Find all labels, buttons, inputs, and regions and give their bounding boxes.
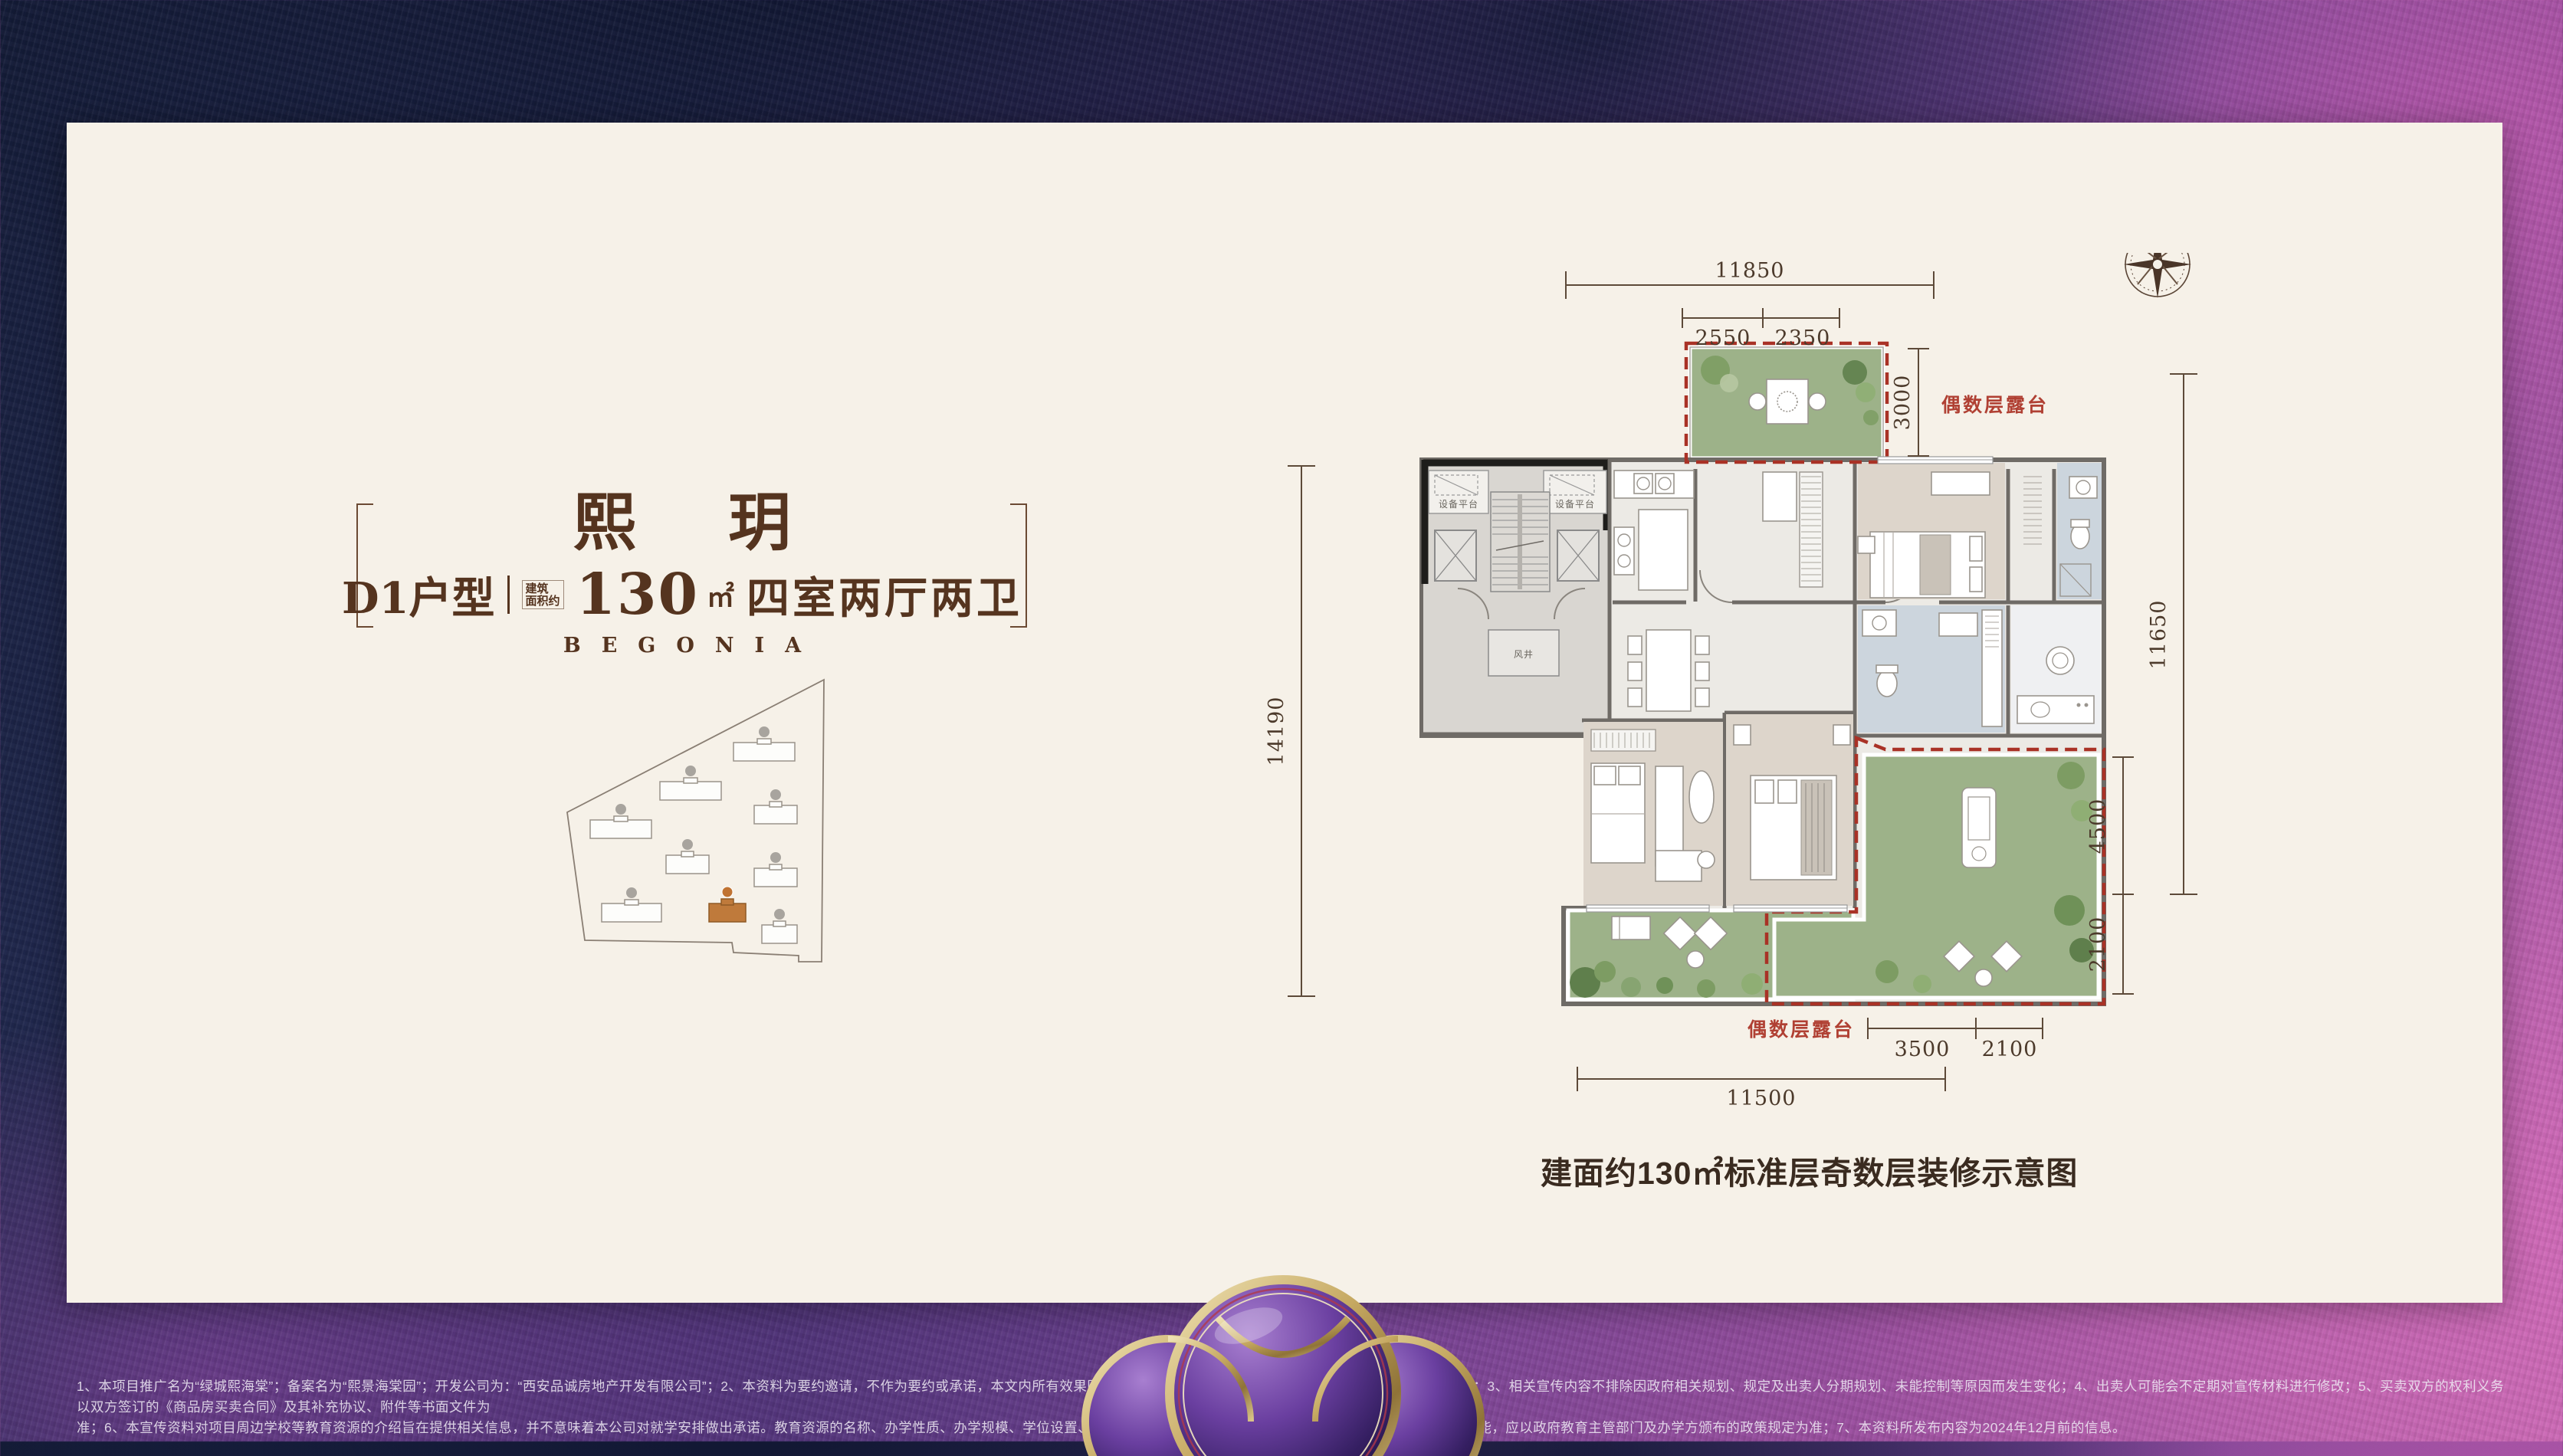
bathroom-top	[2057, 463, 2102, 599]
brand-english-name: BEGONIA	[337, 634, 1027, 657]
dim-top-overall: 11850	[1715, 259, 1785, 283]
terrace-top	[1690, 347, 1883, 458]
area-unit: ㎡	[707, 575, 734, 615]
emblem-orbs	[1085, 1280, 1481, 1456]
site-plan-map	[537, 671, 866, 985]
dim-right-overall: 11650	[2147, 600, 2171, 670]
highlighted-building	[709, 887, 746, 922]
equip-platform-label-2: 设备平台	[1555, 498, 1595, 510]
dining-area	[1628, 630, 1709, 711]
dim-bottom-seg1: 3500	[1895, 1038, 1951, 1061]
wind-shaft-label: 风井	[1514, 649, 1534, 660]
site-buildings	[590, 726, 797, 943]
bedroom-master	[1583, 722, 1723, 906]
dim-top-seg2: 2350	[1775, 326, 1831, 350]
unit-spec-line: D1户型 建筑 面积约 130 ㎡ 四室两厅两卫	[337, 562, 1027, 628]
page-title: 熙 玥	[337, 471, 1027, 562]
brand-emblem	[1076, 1226, 1490, 1456]
content-card: 熙 玥 D1户型 建筑 面积约 130 ㎡ 四室两厅两卫 BEGONIA	[67, 123, 2502, 1303]
staircase	[1491, 492, 1550, 592]
dim-bottom-seg2: 2100	[1982, 1038, 2038, 1061]
unit-type-label: D1户型	[342, 564, 495, 626]
area-value: 130	[576, 562, 699, 628]
compass-icon: N	[2124, 253, 2191, 298]
terrace-label-bottom: 偶数层露台	[1747, 1018, 1855, 1041]
plan-caption: 建面约130㎡标准层奇数层装修示意图	[1541, 1147, 2078, 1193]
bathroom-middle	[1858, 605, 2005, 733]
equip-platform-label-1: 设备平台	[1439, 498, 1478, 510]
title-block: 熙 玥 D1户型 建筑 面积约 130 ㎡ 四室两厅两卫 BEGONIA	[337, 471, 1027, 655]
dim-terrace-height: 3000	[1891, 375, 1915, 431]
dim-right-seg1: 4500	[2086, 799, 2110, 854]
divider	[507, 576, 510, 614]
dim-top-seg1: 2550	[1695, 326, 1751, 350]
laundry	[2011, 605, 2102, 733]
kitchen	[1614, 471, 1694, 590]
area-note: 建筑 面积约	[522, 580, 564, 609]
terrace-label-top: 偶数层露台	[1941, 394, 2049, 416]
dim-bottom-overall: 11500	[1727, 1087, 1797, 1110]
dim-right-seg2: 2100	[2086, 917, 2110, 972]
dim-left-overall: 14190	[1265, 697, 1288, 766]
bedroom-second	[1726, 714, 1853, 906]
poster-page: { "header": { "title": "熙 玥", "unit_labe…	[0, 0, 2563, 1441]
floor-plan: 设备平台 设备平台 风井	[1257, 253, 2238, 1134]
rooms-label: 四室两厅两卫	[747, 564, 1022, 626]
